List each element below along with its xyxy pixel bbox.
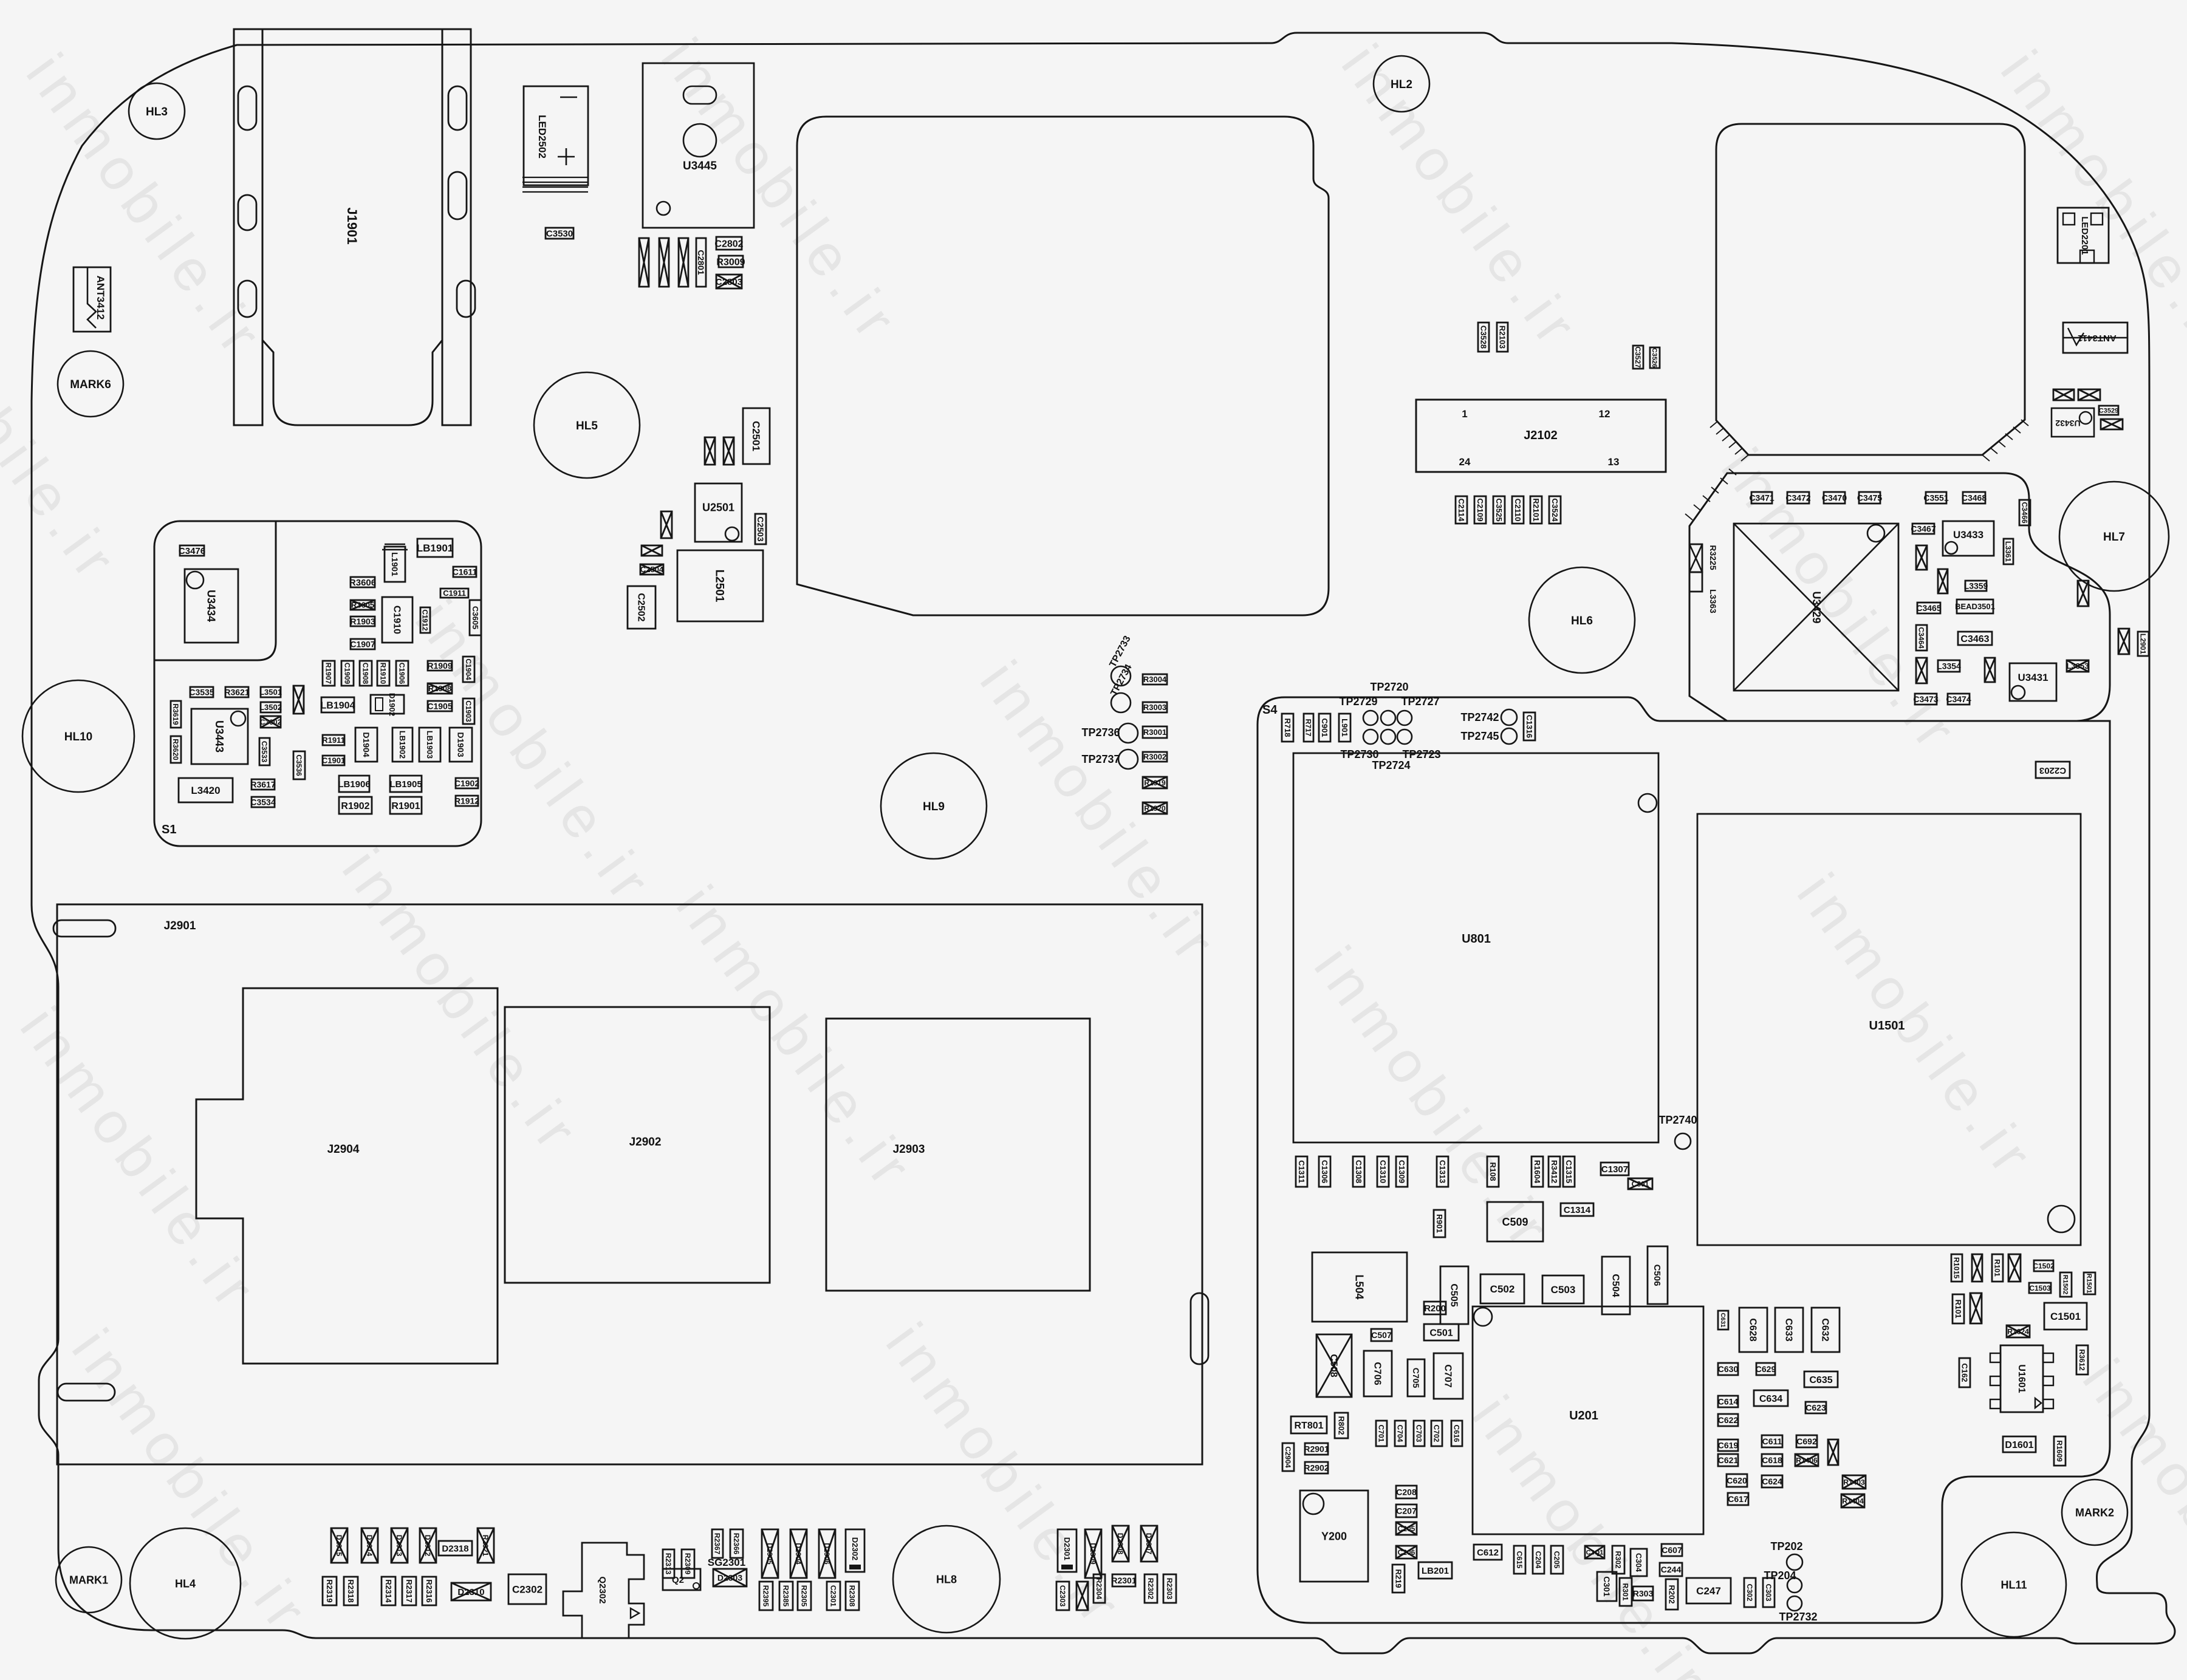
svg-text:TP2727: TP2727 — [1401, 695, 1439, 708]
svg-text:R3621: R3621 — [224, 688, 249, 697]
svg-text:C208: C208 — [1396, 1487, 1417, 1497]
svg-text:D2301: D2301 — [1063, 1537, 1072, 1560]
svg-text:HL3: HL3 — [146, 106, 168, 118]
svg-text:C1313: C1313 — [1438, 1160, 1447, 1183]
svg-text:U1601: U1601 — [2016, 1364, 2027, 1393]
svg-text:C3475: C3475 — [1857, 493, 1882, 503]
svg-text:C207: C207 — [1396, 1506, 1417, 1516]
svg-text:HL4: HL4 — [175, 1577, 196, 1590]
svg-text:C1906: C1906 — [398, 663, 406, 685]
svg-text:MARK6: MARK6 — [70, 378, 111, 391]
svg-text:C3526: C3526 — [1651, 348, 1658, 367]
svg-text:C692: C692 — [1796, 1436, 1817, 1446]
svg-text:TP2742: TP2742 — [1460, 711, 1499, 723]
svg-text:LB1902: LB1902 — [398, 731, 407, 759]
svg-text:R2101: R2101 — [1532, 498, 1541, 521]
svg-text:R3620: R3620 — [171, 739, 180, 760]
svg-text:C621: C621 — [1718, 1455, 1739, 1465]
svg-text:C2502: C2502 — [635, 593, 646, 621]
svg-text:C2904: C2904 — [1284, 1446, 1292, 1468]
svg-text:R3606: R3606 — [349, 578, 376, 588]
svg-text:C301: C301 — [1602, 1576, 1612, 1597]
svg-text:U3432: U3432 — [2055, 418, 2080, 428]
svg-text:R1403: R1403 — [1843, 1478, 1865, 1486]
svg-text:C2803: C2803 — [716, 277, 742, 287]
svg-text:TP2736: TP2736 — [1081, 726, 1120, 739]
svg-text:R1406: R1406 — [1796, 1456, 1818, 1464]
svg-text:R1609: R1609 — [2055, 1440, 2064, 1462]
svg-text:C801: C801 — [1632, 1180, 1649, 1188]
svg-text:D2905: D2905 — [765, 1543, 774, 1565]
svg-text:C1908: C1908 — [361, 663, 370, 685]
svg-text:R2302: R2302 — [1146, 1578, 1155, 1600]
svg-text:Q2302: Q2302 — [597, 1576, 607, 1603]
svg-text:C3471: C3471 — [1749, 493, 1774, 503]
svg-text:D2913: D2913 — [395, 1535, 403, 1557]
svg-text:C501: C501 — [1429, 1328, 1453, 1338]
svg-text:C3530: C3530 — [546, 228, 573, 239]
svg-text:C2802: C2802 — [714, 239, 743, 249]
svg-text:C3551: C3551 — [1923, 493, 1948, 503]
svg-text:R1908: R1908 — [428, 684, 451, 693]
svg-text:TP202: TP202 — [1770, 1540, 1802, 1552]
svg-text:C901: C901 — [1320, 718, 1329, 737]
svg-text:C1902: C1902 — [454, 779, 479, 788]
svg-text:ANT3412: ANT3412 — [95, 276, 106, 320]
svg-text:R2367: R2367 — [713, 1533, 722, 1555]
svg-text:C503: C503 — [1551, 1284, 1576, 1296]
svg-text:C1307: C1307 — [1601, 1164, 1628, 1175]
svg-text:R718: R718 — [1283, 718, 1292, 737]
svg-text:U3434: U3434 — [205, 590, 217, 622]
svg-text:R1502: R1502 — [2062, 1275, 2069, 1294]
svg-text:LB1905: LB1905 — [389, 779, 422, 790]
svg-text:13: 13 — [1608, 456, 1620, 468]
svg-text:L901: L901 — [1340, 719, 1349, 737]
svg-text:R2103: R2103 — [1497, 326, 1507, 349]
svg-text:C3474: C3474 — [1946, 694, 1971, 704]
svg-text:R1911: R1911 — [322, 736, 345, 745]
svg-text:C611: C611 — [1762, 1436, 1782, 1446]
svg-text:L3361: L3361 — [2004, 541, 2013, 562]
svg-text:R3225: R3225 — [1708, 545, 1718, 570]
svg-text:LB201: LB201 — [1422, 1566, 1449, 1576]
svg-text:R3412: R3412 — [1550, 1160, 1559, 1183]
svg-text:C623: C623 — [1805, 1403, 1826, 1413]
svg-text:C1502: C1502 — [2033, 1262, 2055, 1270]
svg-text:C507: C507 — [1371, 1330, 1392, 1340]
svg-text:C706: C706 — [1372, 1362, 1382, 1385]
svg-text:C616: C616 — [1453, 1425, 1461, 1443]
svg-text:R3617: R3617 — [250, 780, 275, 790]
svg-text:LB1906: LB1906 — [338, 779, 370, 790]
svg-text:C705: C705 — [1411, 1368, 1421, 1388]
svg-text:C614: C614 — [1718, 1397, 1739, 1407]
svg-text:R2314: R2314 — [384, 1579, 393, 1603]
svg-text:HL8: HL8 — [936, 1573, 957, 1585]
svg-text:C162: C162 — [1960, 1363, 1969, 1382]
svg-text:C1316: C1316 — [1525, 715, 1534, 738]
svg-text:HL6: HL6 — [1571, 615, 1593, 627]
svg-text:MARK1: MARK1 — [69, 1574, 108, 1586]
svg-text:HL2: HL2 — [1391, 78, 1412, 91]
svg-text:C3525: C3525 — [1494, 498, 1504, 521]
svg-text:R3003: R3003 — [1143, 703, 1166, 712]
svg-text:L2501: L2501 — [713, 570, 726, 603]
svg-text:C3470: C3470 — [1822, 493, 1847, 503]
svg-text:L3353: L3353 — [2067, 661, 2089, 671]
svg-text:TP2745: TP2745 — [1460, 730, 1499, 742]
svg-text:HL5: HL5 — [576, 420, 598, 432]
svg-text:C303: C303 — [1764, 1584, 1773, 1602]
svg-text:C2301: C2301 — [829, 1585, 838, 1607]
svg-text:U801: U801 — [1462, 932, 1491, 946]
svg-text:C612: C612 — [1477, 1548, 1499, 1558]
svg-text:C3527: C3527 — [1634, 346, 1642, 368]
svg-text:R202: R202 — [1667, 1585, 1676, 1603]
svg-text:C628: C628 — [1747, 1318, 1757, 1341]
svg-text:C630: C630 — [1718, 1364, 1739, 1374]
svg-text:R2308: R2308 — [848, 1585, 857, 1607]
svg-text:U3443: U3443 — [213, 720, 225, 753]
svg-text:1: 1 — [1462, 408, 1467, 420]
svg-text:C3535: C3535 — [189, 688, 214, 697]
svg-text:U2501: U2501 — [702, 501, 734, 513]
svg-text:C1611: C1611 — [453, 567, 477, 577]
svg-text:C2504: C2504 — [640, 565, 664, 574]
svg-text:C1907: C1907 — [350, 640, 375, 649]
svg-text:C624: C624 — [1762, 1477, 1782, 1486]
svg-text:C620: C620 — [1727, 1476, 1747, 1486]
svg-text:R2902: R2902 — [1304, 1463, 1329, 1473]
svg-text:C302: C302 — [1745, 1584, 1754, 1602]
svg-text:C247: C247 — [1696, 1585, 1721, 1597]
svg-text:C703: C703 — [1415, 1425, 1423, 1443]
svg-text:C634: C634 — [1759, 1394, 1782, 1404]
svg-text:C3529: C3529 — [2099, 407, 2118, 414]
svg-text:R2301: R2301 — [1111, 1576, 1136, 1585]
svg-text:C3536: C3536 — [295, 754, 303, 776]
svg-text:R3009: R3009 — [716, 257, 745, 267]
svg-text:S4: S4 — [1262, 703, 1278, 717]
svg-text:L3420: L3420 — [191, 785, 220, 796]
svg-text:MARK2: MARK2 — [2075, 1506, 2114, 1518]
svg-text:L3359: L3359 — [1964, 581, 1988, 591]
svg-text:R2366: R2366 — [732, 1533, 741, 1555]
svg-text:L504: L504 — [1354, 1274, 1366, 1299]
svg-text:R2305: R2305 — [800, 1585, 809, 1607]
svg-text:R2317: R2317 — [405, 1579, 414, 1602]
svg-text:L3502: L3502 — [259, 703, 282, 712]
svg-text:24: 24 — [1459, 456, 1471, 468]
svg-text:L3354: L3354 — [1937, 661, 1961, 671]
svg-text:R3002: R3002 — [1143, 753, 1166, 762]
svg-text:D2310: D2310 — [457, 1587, 484, 1597]
svg-text:C1501: C1501 — [2050, 1311, 2081, 1322]
svg-text:R1920: R1920 — [1144, 804, 1166, 813]
svg-text:C508: C508 — [1328, 1354, 1338, 1377]
svg-text:R1902: R1902 — [341, 801, 369, 811]
svg-text:C707: C707 — [1442, 1364, 1453, 1387]
svg-text:R2316: R2316 — [425, 1579, 434, 1602]
svg-text:C607: C607 — [1662, 1545, 1682, 1555]
svg-text:C505: C505 — [1448, 1283, 1459, 1306]
svg-text:R219: R219 — [1394, 1569, 1403, 1588]
svg-text:D2912: D2912 — [423, 1535, 432, 1557]
svg-text:C205: C205 — [1398, 1525, 1415, 1533]
svg-text:D1902: D1902 — [388, 693, 397, 716]
svg-text:R901: R901 — [1435, 1214, 1444, 1233]
svg-text:R1404: R1404 — [1842, 1497, 1864, 1505]
svg-text:TP2723: TP2723 — [1402, 748, 1440, 760]
svg-text:U1501: U1501 — [1869, 1019, 1905, 1033]
svg-text:D2904: D2904 — [794, 1543, 803, 1565]
svg-text:12: 12 — [1599, 408, 1610, 420]
svg-text:C1901: C1901 — [322, 756, 345, 765]
svg-text:R2385: R2385 — [782, 1585, 790, 1607]
svg-text:R1903: R1903 — [350, 616, 375, 626]
svg-text:C2203: C2203 — [2039, 765, 2066, 776]
svg-text:C2114: C2114 — [1457, 499, 1466, 522]
svg-text:TP204: TP204 — [1764, 1569, 1796, 1582]
svg-text:C1911: C1911 — [443, 589, 466, 598]
svg-text:J2901: J2901 — [164, 920, 196, 932]
svg-text:D2318: D2318 — [442, 1543, 468, 1554]
svg-text:R101: R101 — [1993, 1259, 2002, 1277]
svg-text:C2110: C2110 — [1513, 499, 1522, 522]
svg-text:D2309: D2309 — [1089, 1543, 1097, 1565]
svg-text:R302: R302 — [1614, 1551, 1623, 1569]
svg-text:D1601: D1601 — [2005, 1440, 2033, 1450]
svg-text:D1903: D1903 — [456, 732, 465, 757]
svg-text:U201: U201 — [1569, 1409, 1598, 1422]
svg-text:RT801: RT801 — [1294, 1421, 1323, 1431]
svg-text:D2308: D2308 — [1116, 1533, 1124, 1555]
svg-text:C704: C704 — [1396, 1425, 1405, 1443]
svg-text:R2321: R2321 — [481, 1535, 490, 1557]
svg-text:D2915: D2915 — [335, 1535, 343, 1557]
svg-text:C615: C615 — [1515, 1551, 1524, 1569]
svg-text:LED2201: LED2201 — [2079, 216, 2090, 254]
svg-text:C504: C504 — [1610, 1274, 1620, 1297]
svg-text:U3433: U3433 — [1953, 529, 1983, 541]
svg-text:C3465: C3465 — [1916, 603, 1941, 613]
svg-text:C619: C619 — [1718, 1441, 1739, 1450]
svg-text:C3476: C3476 — [179, 546, 205, 556]
svg-text:R1604: R1604 — [1533, 1160, 1542, 1184]
svg-text:C3533: C3533 — [260, 741, 269, 763]
svg-text:C204: C204 — [1534, 1551, 1542, 1569]
svg-text:R3612: R3612 — [2078, 1349, 2086, 1371]
svg-text:J2904: J2904 — [327, 1143, 360, 1156]
svg-text:J2902: J2902 — [629, 1136, 662, 1149]
svg-text:R802: R802 — [1336, 1416, 1346, 1435]
svg-text:C1909: C1909 — [343, 663, 352, 685]
svg-text:J2903: J2903 — [893, 1143, 925, 1156]
svg-text:C3605: C3605 — [471, 606, 480, 629]
svg-text:HL10: HL10 — [64, 731, 92, 743]
svg-text:R2303: R2303 — [1165, 1578, 1174, 1600]
svg-text:C244: C244 — [1661, 1565, 1682, 1574]
svg-text:C2303: C2303 — [1058, 1585, 1067, 1607]
svg-text:C3464: C3464 — [1917, 627, 1926, 649]
svg-text:C205: C205 — [1553, 1551, 1561, 1569]
svg-text:C3467: C3467 — [1911, 524, 1935, 534]
svg-text:C3463: C3463 — [1960, 634, 1989, 644]
svg-text:U3445: U3445 — [683, 160, 717, 172]
svg-text:C2501: C2501 — [750, 421, 762, 451]
svg-text:LB1904: LB1904 — [321, 700, 355, 711]
svg-text:S1: S1 — [162, 823, 176, 836]
svg-text:C617: C617 — [1728, 1494, 1748, 1504]
svg-text:LED2502: LED2502 — [536, 115, 548, 159]
svg-text:R1910: R1910 — [379, 663, 388, 685]
svg-text:ANT3411: ANT3411 — [2078, 333, 2116, 343]
svg-text:TP2724: TP2724 — [1372, 759, 1410, 771]
svg-text:TP2730: TP2730 — [1340, 748, 1378, 760]
svg-text:C3466: C3466 — [2021, 502, 2029, 524]
svg-text:HL9: HL9 — [923, 801, 945, 813]
svg-text:C1314: C1314 — [1564, 1205, 1591, 1215]
svg-text:C635: C635 — [1809, 1375, 1832, 1385]
svg-text:C3472: C3472 — [1785, 493, 1810, 503]
svg-text:C632: C632 — [1819, 1318, 1830, 1341]
svg-text:C3602: C3602 — [260, 718, 282, 726]
svg-text:R3619: R3619 — [171, 703, 180, 725]
svg-text:LB1901: LB1901 — [417, 542, 453, 554]
svg-text:C3468: C3468 — [1962, 493, 1987, 503]
svg-text:R2318: R2318 — [346, 1579, 355, 1602]
svg-text:L1901: L1901 — [390, 552, 400, 576]
svg-text:R3001: R3001 — [1143, 728, 1166, 737]
svg-text:C1912: C1912 — [421, 609, 430, 631]
svg-text:J2102: J2102 — [1524, 429, 1558, 442]
svg-text:D2307: D2307 — [1145, 1533, 1153, 1555]
svg-text:HL7: HL7 — [2103, 531, 2125, 544]
svg-text:C3473: C3473 — [1913, 694, 1938, 704]
svg-text:C1308: C1308 — [1354, 1160, 1363, 1183]
svg-text:R303: R303 — [1633, 1589, 1654, 1599]
svg-text:R1907: R1907 — [324, 663, 333, 685]
svg-text:C622: C622 — [1718, 1415, 1739, 1425]
svg-text:C509: C509 — [1502, 1216, 1528, 1228]
svg-text:C1309: C1309 — [1397, 1160, 1406, 1183]
svg-text:R2901: R2901 — [1304, 1444, 1329, 1454]
svg-text:R200: R200 — [1424, 1303, 1446, 1314]
svg-text:R101: R101 — [1954, 1299, 1963, 1318]
svg-text:C1310: C1310 — [1378, 1160, 1388, 1183]
svg-text:TP2737: TP2737 — [1081, 753, 1120, 765]
svg-text:C702: C702 — [1432, 1425, 1441, 1443]
svg-text:C502: C502 — [1490, 1283, 1515, 1295]
svg-text:BEAD3501: BEAD3501 — [1955, 602, 1995, 611]
svg-text:C1903: C1903 — [464, 700, 473, 722]
svg-text:J1901: J1901 — [344, 207, 360, 244]
svg-text:R108: R108 — [1488, 1162, 1497, 1181]
svg-text:R1015: R1015 — [1953, 1257, 1961, 1279]
svg-text:R1909: R1909 — [427, 661, 452, 671]
svg-text:C1315: C1315 — [1564, 1160, 1573, 1183]
svg-text:C1311: C1311 — [1297, 1160, 1306, 1183]
svg-text:R2313: R2313 — [664, 1553, 673, 1575]
svg-text:C3524: C3524 — [1550, 498, 1559, 522]
svg-text:L2901: L2901 — [2139, 633, 2148, 654]
svg-text:R2309: R2309 — [683, 1553, 692, 1575]
svg-text:R301: R301 — [1621, 1583, 1630, 1601]
svg-text:D1904: D1904 — [361, 732, 371, 757]
svg-text:LB1903: LB1903 — [425, 731, 434, 759]
svg-text:R2395: R2395 — [762, 1585, 770, 1607]
svg-text:R1624: R1624 — [2007, 1327, 2029, 1336]
svg-text:TP2729: TP2729 — [1339, 695, 1377, 708]
svg-text:R2304: R2304 — [1095, 1578, 1103, 1600]
svg-text:C2801: C2801 — [696, 250, 706, 275]
svg-text:U3429: U3429 — [1810, 591, 1823, 623]
svg-text:TP2720: TP2720 — [1370, 681, 1408, 693]
svg-text:C1306: C1306 — [1320, 1160, 1329, 1183]
svg-text:SG2301: SG2301 — [708, 1557, 745, 1568]
svg-text:C506: C506 — [1652, 1265, 1662, 1286]
svg-text:C1905: C1905 — [427, 702, 452, 711]
svg-text:R1901: R1901 — [391, 801, 420, 811]
svg-text:D2914: D2914 — [365, 1535, 374, 1557]
svg-text:C2503: C2503 — [756, 516, 765, 541]
svg-text:C1503: C1503 — [2029, 1284, 2051, 1292]
svg-text:TP2732: TP2732 — [1779, 1611, 1817, 1623]
svg-text:R717: R717 — [1304, 719, 1313, 737]
svg-text:C1904: C1904 — [464, 658, 473, 680]
svg-text:C3534: C3534 — [250, 797, 275, 807]
svg-text:L3501: L3501 — [259, 688, 282, 697]
svg-text:R1912: R1912 — [454, 796, 479, 806]
svg-text:R3004: R3004 — [1143, 675, 1167, 684]
svg-text:R1501: R1501 — [2086, 1274, 2093, 1293]
svg-text:D2302: D2302 — [850, 1537, 860, 1560]
svg-text:C633: C633 — [1783, 1318, 1793, 1341]
svg-text:U3431: U3431 — [2018, 672, 2048, 683]
svg-text:C3Q1: C3Q1 — [1586, 1549, 1604, 1556]
svg-text:L3363: L3363 — [1708, 589, 1718, 613]
svg-text:C2302: C2302 — [512, 1584, 542, 1596]
svg-text:C3528: C3528 — [1479, 326, 1488, 349]
svg-text:C1910: C1910 — [391, 606, 402, 634]
svg-text:C206: C206 — [1398, 1548, 1415, 1557]
svg-text:R1919: R1919 — [1144, 779, 1166, 787]
svg-text:Y200: Y200 — [1321, 1530, 1347, 1542]
svg-text:D2906: D2906 — [823, 1543, 831, 1565]
svg-text:C629: C629 — [1756, 1364, 1776, 1374]
svg-text:D2303: D2303 — [717, 1573, 742, 1583]
svg-text:C2109: C2109 — [1476, 498, 1485, 521]
svg-text:Q2: Q2 — [672, 1575, 684, 1585]
svg-text:C701: C701 — [1377, 1425, 1386, 1443]
svg-text:C631: C631 — [1719, 1313, 1726, 1328]
svg-text:R3605: R3605 — [351, 601, 374, 610]
svg-text:TP2740: TP2740 — [1658, 1114, 1697, 1126]
svg-text:HL11: HL11 — [2000, 1579, 2027, 1591]
svg-text:C304: C304 — [1634, 1553, 1643, 1572]
svg-text:C618: C618 — [1762, 1455, 1782, 1465]
svg-text:R2319: R2319 — [325, 1579, 334, 1602]
